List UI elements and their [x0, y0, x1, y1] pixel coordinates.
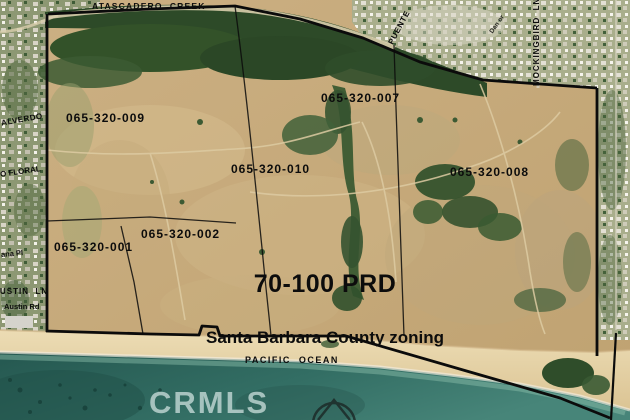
parcel-apn-065-320-001: 065-320-001 [54, 241, 133, 254]
pacific-ocean-label: PACIFIC OCEAN [245, 356, 339, 365]
parcel-apn-065-320-008: 065-320-008 [450, 166, 529, 179]
street-label-ustin-ln: USTIN LN [0, 288, 48, 296]
zoning-jurisdiction: Santa Barbara County zoning [165, 329, 485, 347]
parcel-apn-065-320-007: 065-320-007 [321, 92, 400, 105]
parcel-apn-065-320-010: 065-320-010 [231, 163, 310, 176]
zoning-code: 70-100 PRD [165, 271, 485, 297]
street-label-atascadero-creek: ATASCADERO CREEK [92, 2, 206, 11]
parcel-apn-065-320-009: 065-320-009 [66, 112, 145, 125]
crmls-watermark: CRMLS [149, 387, 269, 420]
street-label-mockingbird-ln: MOCKINGBIRD LN [533, 0, 541, 86]
street-label-austin-rd: Austin Rd [4, 303, 39, 311]
aerial-parcel-map: ATASCADERO CREEK PUENTE Dan or MOCKINGBI… [0, 0, 630, 420]
